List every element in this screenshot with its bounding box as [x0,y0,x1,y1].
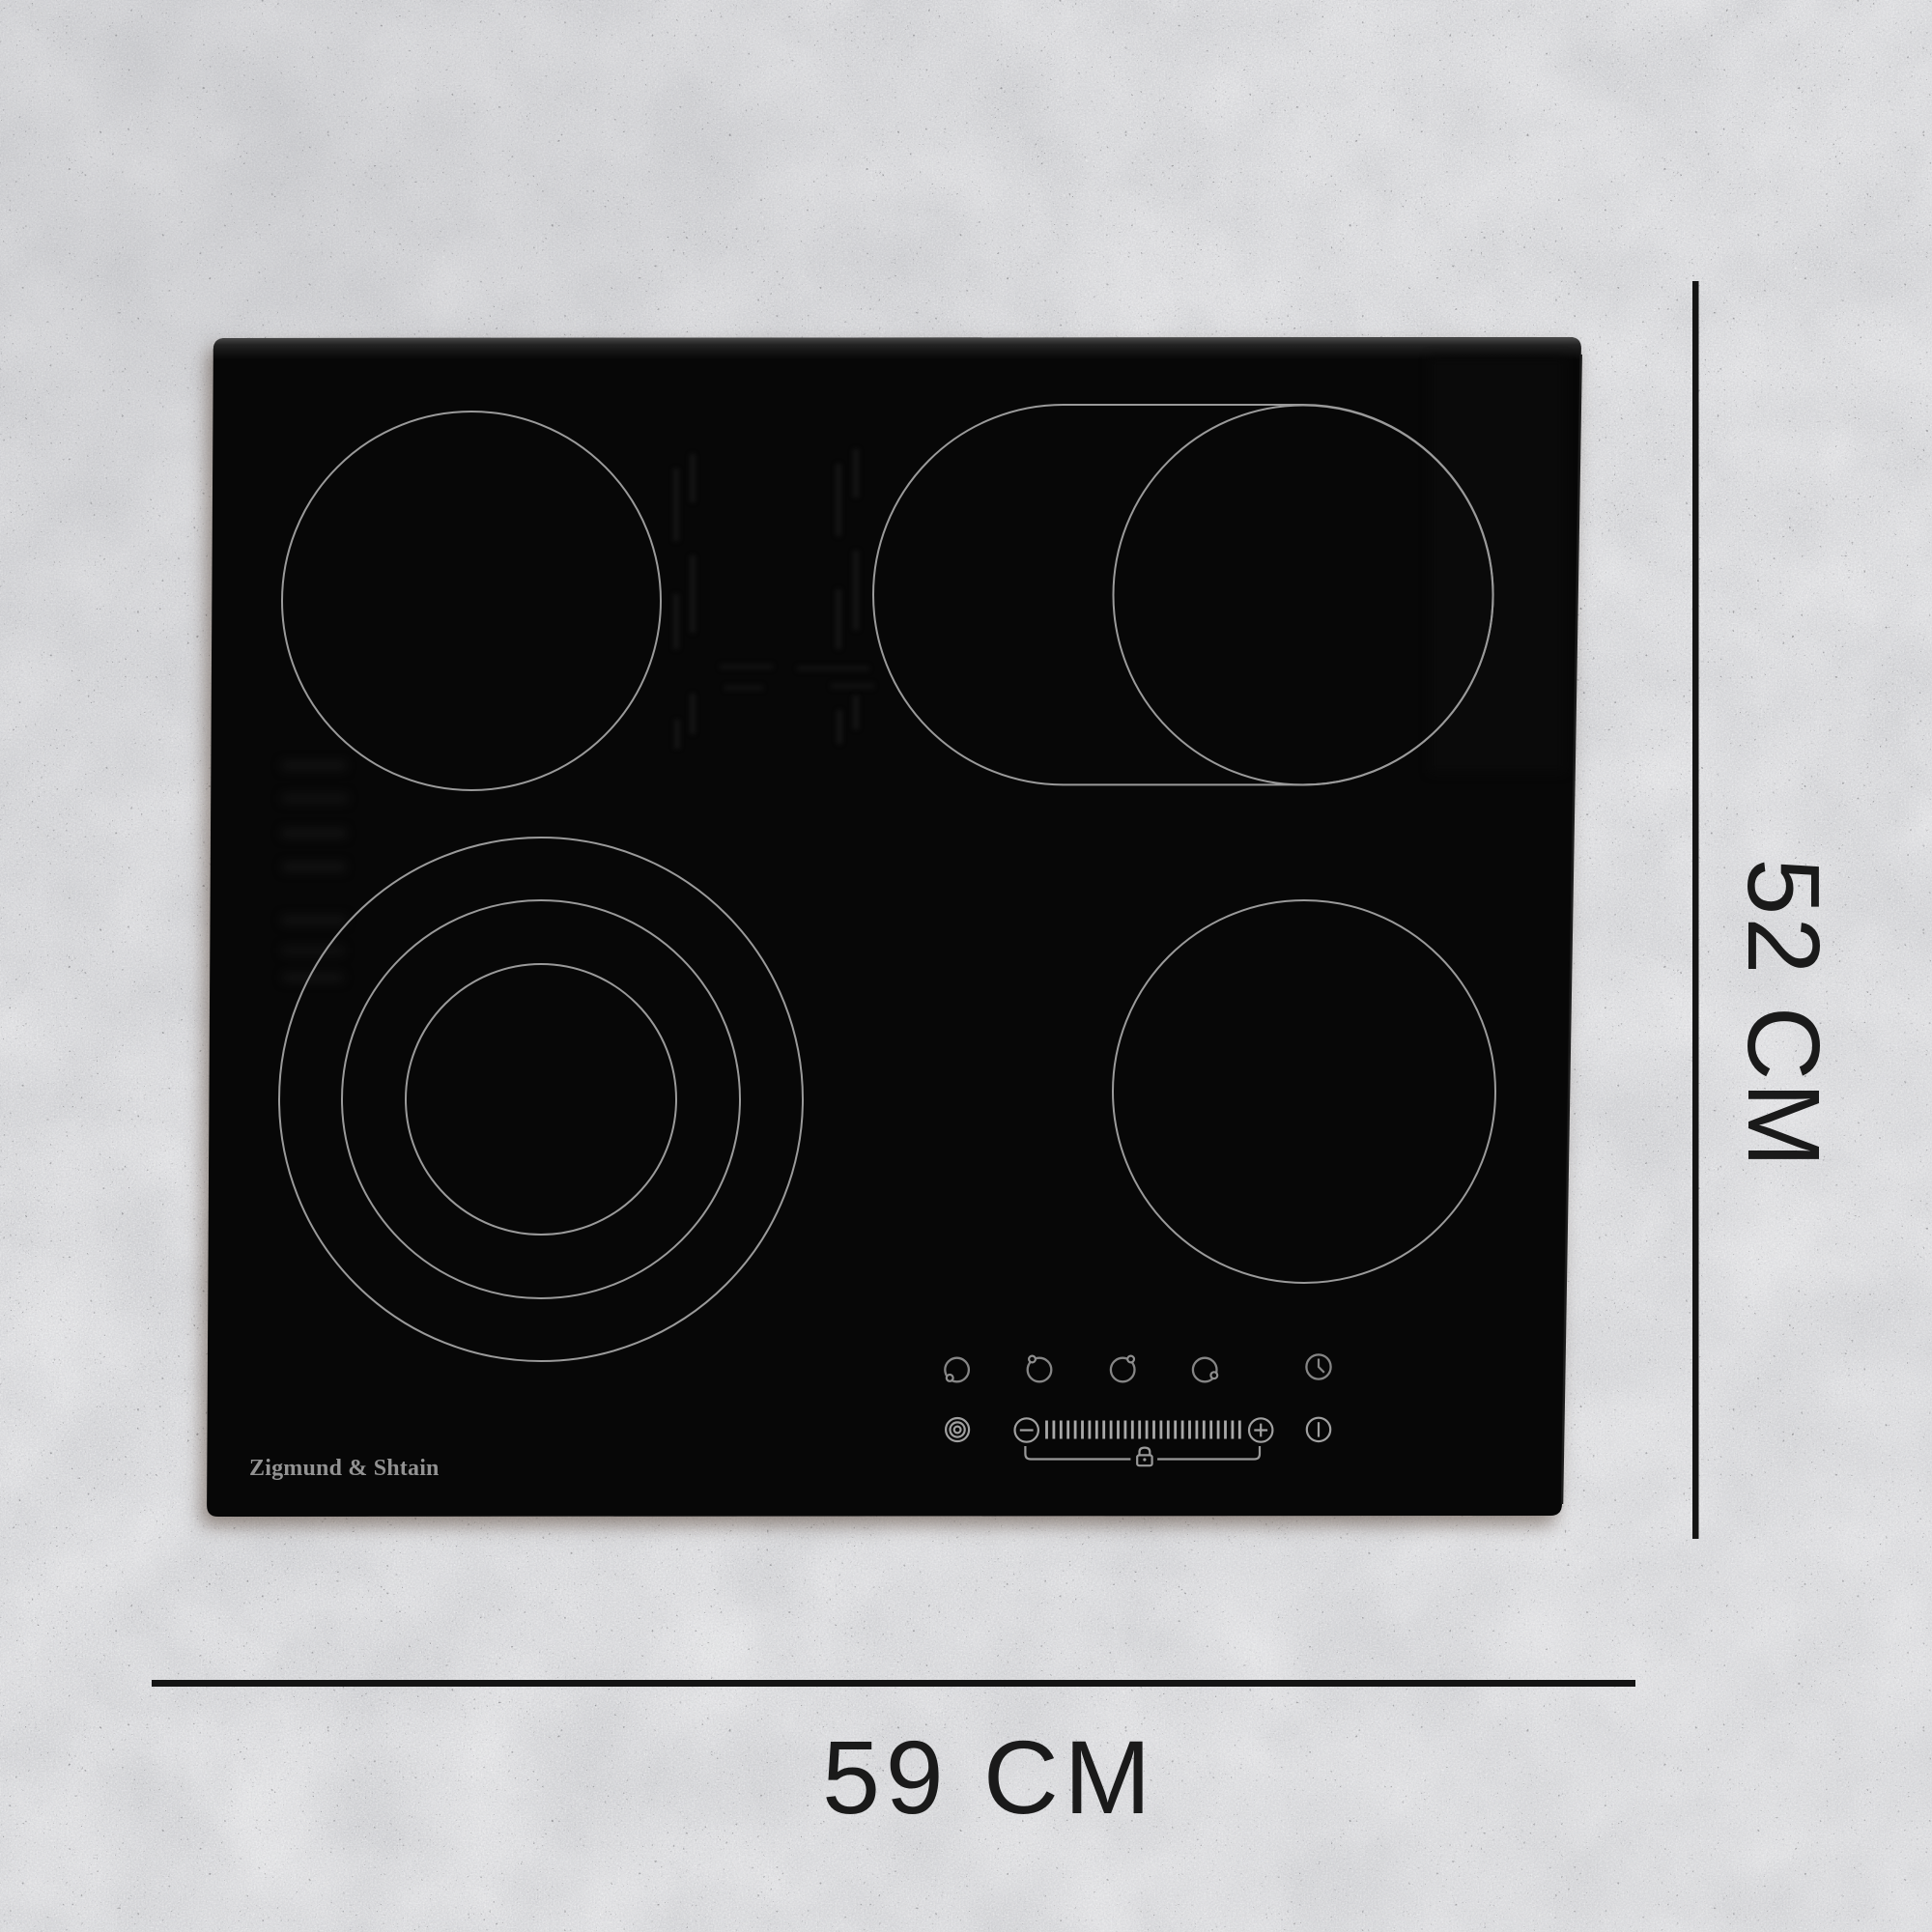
svg-text:Zigmund & Shtain: Zigmund & Shtain [249,1456,440,1481]
svg-text:52 CM: 52 CM [1726,858,1840,1169]
svg-text:59 CM: 59 CM [822,1719,1156,1835]
